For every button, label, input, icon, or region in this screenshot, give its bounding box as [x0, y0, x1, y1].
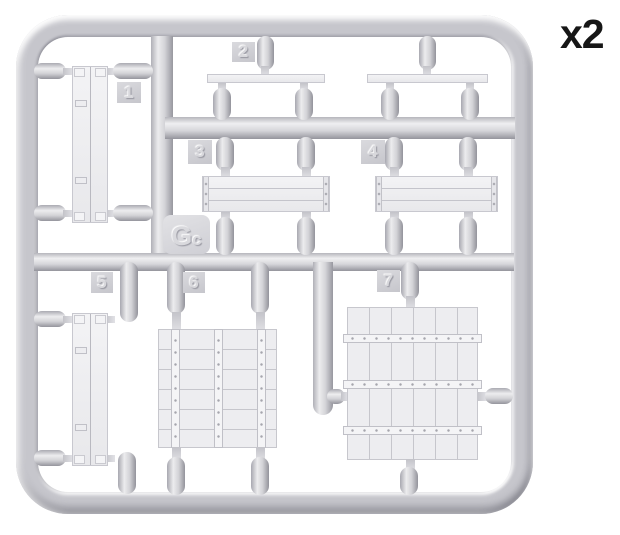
batten	[343, 334, 482, 343]
tag-part-3: 3	[188, 140, 212, 164]
gate-bulb	[251, 262, 269, 314]
gate-bulb	[216, 137, 234, 171]
tag-part-6-number: 6	[189, 273, 198, 293]
gate-bulb	[400, 467, 418, 495]
gate-bulb	[34, 205, 66, 221]
hinge-detail	[75, 100, 87, 107]
part-5-door-plank	[72, 313, 108, 466]
gate-bulb	[118, 452, 136, 494]
gate-bulb	[419, 36, 436, 70]
gate-bulb	[113, 205, 153, 221]
batten	[171, 329, 180, 448]
runner-horizontal-upper	[165, 117, 515, 139]
part-1-door-plank	[72, 66, 108, 223]
batten	[343, 380, 482, 389]
tag-part-4: 4	[361, 140, 385, 164]
batten	[214, 329, 223, 448]
gate-bulb	[459, 137, 477, 171]
tag-part-1: 1	[117, 82, 141, 103]
tag-part-4-number: 4	[368, 142, 377, 162]
clip-detail	[95, 212, 106, 221]
hinge-detail	[75, 177, 87, 184]
plank-line	[90, 314, 91, 465]
gate-bulb	[120, 262, 138, 322]
gate-bulb	[213, 88, 231, 120]
plank-line	[376, 200, 497, 201]
gate-bulb	[34, 63, 66, 79]
part-7-panel	[347, 307, 478, 460]
end-batten	[491, 177, 497, 211]
gate-bulb	[251, 457, 269, 495]
batten	[257, 329, 266, 448]
tag-part-5: 5	[91, 272, 113, 293]
clip-detail	[95, 315, 106, 324]
plank-line	[376, 188, 497, 189]
hinge-detail	[75, 424, 87, 431]
tag-part-7-number: 7	[384, 271, 393, 291]
plank-line	[90, 67, 91, 222]
gate-bulb	[381, 88, 399, 120]
gate-bulb	[113, 63, 153, 79]
gate-bulb	[459, 217, 477, 255]
end-batten	[323, 177, 329, 211]
gate-bulb	[295, 88, 313, 120]
clip-detail	[95, 68, 106, 77]
tag-part-1-number: 1	[124, 83, 133, 103]
gate-stub	[256, 312, 265, 330]
runner-horizontal-middle	[34, 253, 514, 271]
end-batten	[376, 177, 382, 211]
part-2-strip	[207, 74, 325, 83]
clip-detail	[74, 68, 85, 77]
gate-bulb	[167, 457, 185, 495]
sprue-code-letter-sub: c	[192, 231, 201, 250]
quantity-label: x2	[560, 14, 618, 55]
part-3-crate-side	[202, 176, 330, 212]
tag-part-2: 2	[232, 42, 255, 62]
clip-detail	[74, 455, 85, 464]
part-2-strip	[367, 74, 488, 83]
sprue-diagram: 1 2 3 4 5 6 7 G c x2	[0, 0, 620, 535]
gate-bulb	[297, 217, 315, 255]
clip-detail	[74, 315, 85, 324]
gate-bulb	[216, 217, 234, 255]
sprue-code-tag: G c	[163, 215, 210, 254]
sprue-code-letter: G	[171, 223, 192, 250]
tag-part-7: 7	[377, 270, 400, 292]
tag-part-6: 6	[183, 272, 205, 293]
tag-part-5-number: 5	[97, 273, 106, 293]
gate-bulb	[297, 137, 315, 171]
end-batten	[203, 177, 209, 211]
gate-bulb	[401, 262, 419, 300]
gate-bulb	[385, 137, 403, 171]
tag-part-2-number: 2	[239, 42, 248, 62]
gate-bulb	[385, 217, 403, 255]
tag-part-3-number: 3	[195, 142, 204, 162]
gate-stub	[172, 312, 181, 330]
gate-bulb	[34, 450, 66, 466]
clip-detail	[74, 212, 85, 221]
gate-bulb	[257, 36, 274, 70]
hinge-detail	[75, 347, 87, 354]
plank-line	[203, 200, 329, 201]
plank-line	[203, 188, 329, 189]
batten	[343, 426, 482, 435]
clip-detail	[95, 455, 106, 464]
gate-bulb	[34, 311, 66, 327]
gate-bulb	[485, 388, 513, 404]
gate-bulb	[461, 88, 479, 120]
part-6-panel	[158, 329, 277, 448]
part-4-crate-side	[375, 176, 498, 212]
